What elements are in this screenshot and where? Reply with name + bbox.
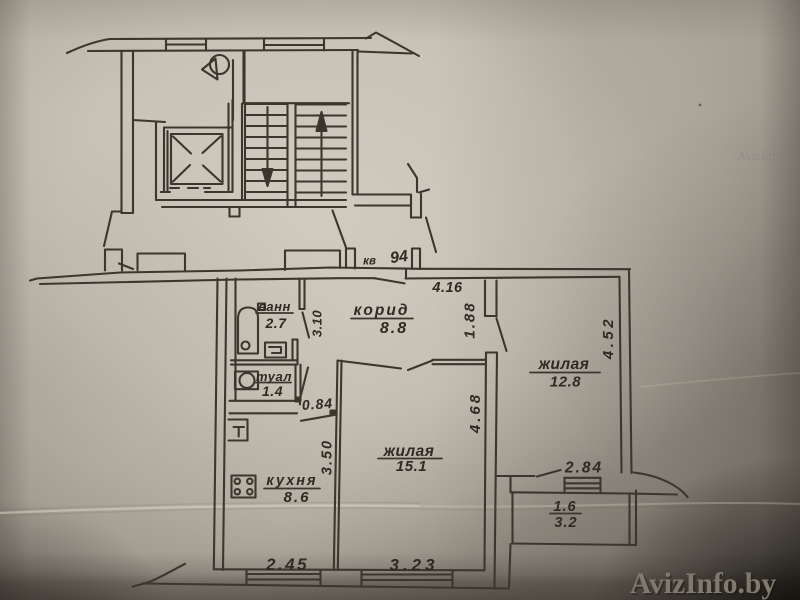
svg-text:0.84: 0.84 — [301, 395, 333, 413]
svg-text:3.2: 3.2 — [554, 515, 577, 531]
svg-text:4.16: 4.16 — [431, 280, 463, 296]
svg-text:1.88: 1.88 — [462, 301, 479, 338]
svg-text:8.6: 8.6 — [284, 489, 311, 506]
svg-text:15.1: 15.1 — [396, 458, 427, 475]
svg-text:4.68: 4.68 — [467, 392, 484, 434]
svg-text:3.23: 3.23 — [389, 556, 438, 575]
svg-text:4.52: 4.52 — [600, 316, 617, 360]
svg-text:AvizInfo.by: AvizInfo.by — [630, 568, 776, 600]
svg-text:2.45: 2.45 — [265, 555, 309, 574]
svg-text:3.50: 3.50 — [320, 439, 336, 475]
svg-text:2.84: 2.84 — [564, 460, 603, 477]
svg-text:ванн: ванн — [258, 299, 291, 314]
svg-text:кв: кв — [363, 256, 376, 268]
svg-text:жилая: жилая — [538, 356, 590, 373]
svg-text:8.8: 8.8 — [380, 320, 408, 337]
svg-text:2.7: 2.7 — [265, 315, 288, 331]
svg-text:3.10: 3.10 — [310, 310, 325, 338]
svg-text:корид: корид — [354, 302, 410, 319]
svg-text:94: 94 — [389, 248, 409, 267]
svg-text:1.4: 1.4 — [262, 383, 283, 399]
svg-text:кухня: кухня — [266, 473, 317, 489]
svg-text:12.8: 12.8 — [550, 374, 581, 391]
svg-text:AvizInfo.by: AvizInfo.by — [737, 148, 800, 163]
svg-text:1.6: 1.6 — [553, 499, 576, 515]
svg-text:туал: туал — [256, 369, 292, 384]
